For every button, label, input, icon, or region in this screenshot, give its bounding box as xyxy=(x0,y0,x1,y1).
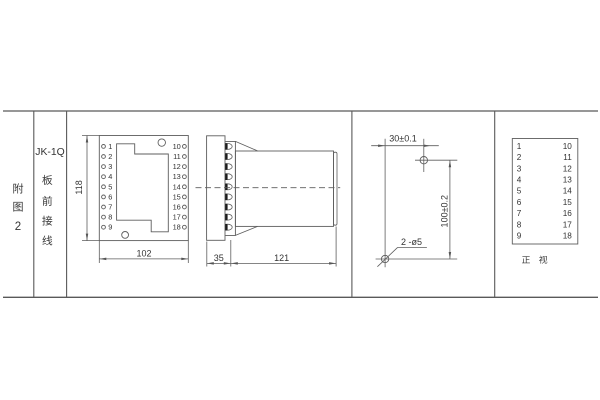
svg-text:15: 15 xyxy=(173,192,181,201)
svg-text:6: 6 xyxy=(108,192,112,201)
svg-text:121: 121 xyxy=(274,253,289,263)
svg-text:13: 13 xyxy=(173,172,181,181)
svg-text:18: 18 xyxy=(563,232,573,241)
svg-text:30±0.1: 30±0.1 xyxy=(389,134,416,144)
svg-text:2: 2 xyxy=(15,221,21,233)
svg-text:118: 118 xyxy=(74,180,84,194)
svg-text:6: 6 xyxy=(517,198,522,207)
svg-text:15: 15 xyxy=(563,198,573,207)
svg-text:7: 7 xyxy=(108,203,112,212)
svg-text:11: 11 xyxy=(173,152,181,161)
svg-text:18: 18 xyxy=(173,223,181,232)
svg-text:100±0.2: 100±0.2 xyxy=(440,195,450,227)
svg-text:12: 12 xyxy=(173,162,181,171)
svg-text:8: 8 xyxy=(108,213,112,222)
svg-text:3: 3 xyxy=(517,164,522,173)
svg-text:10: 10 xyxy=(173,142,181,151)
svg-text:17: 17 xyxy=(173,213,181,222)
svg-text:JK-1Q: JK-1Q xyxy=(35,147,64,158)
svg-text:14: 14 xyxy=(563,187,573,196)
svg-text:7: 7 xyxy=(517,209,522,218)
svg-text:16: 16 xyxy=(173,203,181,212)
svg-text:9: 9 xyxy=(108,223,112,232)
svg-text:8: 8 xyxy=(517,220,522,229)
svg-text:13: 13 xyxy=(563,176,573,185)
svg-text:11: 11 xyxy=(563,153,572,162)
svg-text:35: 35 xyxy=(214,253,224,263)
svg-text:5: 5 xyxy=(517,187,522,196)
svg-text:3: 3 xyxy=(108,162,112,171)
svg-text:12: 12 xyxy=(563,164,573,173)
svg-text:2: 2 xyxy=(108,152,112,161)
svg-text:17: 17 xyxy=(563,220,573,229)
svg-text:16: 16 xyxy=(563,209,573,218)
svg-text:2 -ø5: 2 -ø5 xyxy=(401,237,422,247)
svg-text:1: 1 xyxy=(108,142,112,151)
svg-text:9: 9 xyxy=(517,232,522,241)
svg-text:1: 1 xyxy=(517,142,522,151)
svg-text:10: 10 xyxy=(563,142,573,151)
svg-text:4: 4 xyxy=(108,172,112,181)
svg-text:2: 2 xyxy=(517,153,522,162)
svg-text:5: 5 xyxy=(108,182,112,191)
svg-text:102: 102 xyxy=(136,248,151,258)
svg-text:4: 4 xyxy=(517,176,522,185)
svg-text:14: 14 xyxy=(173,182,181,191)
